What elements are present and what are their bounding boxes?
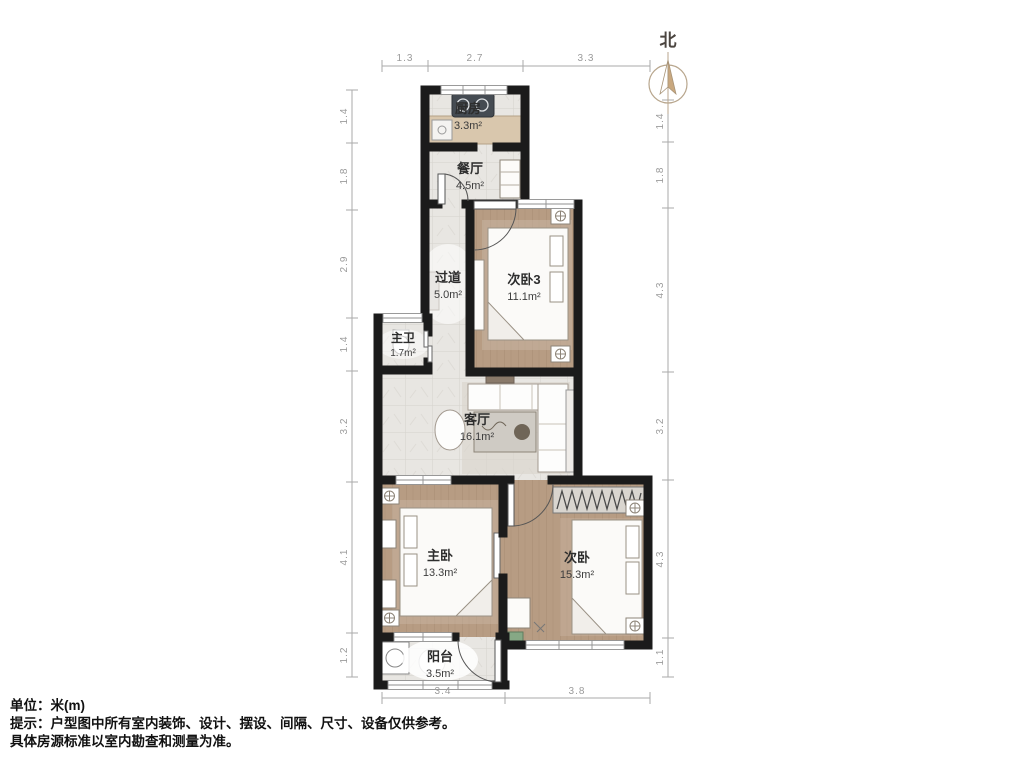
dim-left-4: 1.4 (339, 336, 350, 353)
dim-right-2: 1.8 (655, 167, 666, 184)
footer-unit-line: 单位：米(m) (10, 698, 456, 713)
dim-right-1: 1.4 (655, 113, 666, 130)
north-indicator: 北 (649, 31, 687, 114)
room-name: 餐厅 (456, 161, 483, 176)
room-area: 16.1m² (460, 431, 495, 443)
footer-disclaimer-line: 提示：户型图中所有室内装饰、设计、摆设、间隔、尺寸、设备仅供参考。 (10, 716, 456, 731)
dim-right-6: 1.1 (655, 649, 666, 666)
room-area: 15.3m² (560, 569, 595, 581)
floor-plan-svg: 厨房 3.3m² 餐厅 4.5m² 过道 5.0m² 次卧3 11.1m² 主卫… (0, 0, 1024, 768)
master-balcony-window (394, 633, 452, 642)
floor-plan-page: 厨房 3.3m² 餐厅 4.5m² 过道 5.0m² 次卧3 11.1m² 主卫… (0, 0, 1024, 768)
dim-left-6: 4.1 (339, 549, 350, 566)
footer-standard-line: 具体房源标准以室内勘查和测量为准。 (10, 734, 456, 749)
room-name: 次卧 (564, 550, 590, 565)
dim-left-7: 1.2 (339, 647, 350, 664)
footer-notes: 单位：米(m) 提示：户型图中所有室内装饰、设计、摆设、间隔、尺寸、设备仅供参考… (10, 698, 456, 752)
dim-top-3: 3.3 (578, 53, 595, 64)
sink-icon (432, 120, 452, 140)
dim-right-5: 4.3 (655, 551, 666, 568)
room-name: 主卫 (391, 330, 415, 345)
master-door-leaf (494, 533, 500, 578)
dim-top-1: 1.3 (397, 53, 414, 64)
bedroom3-desk (474, 260, 484, 330)
dim-left-1: 1.4 (339, 108, 350, 125)
dim-left-5: 3.2 (339, 418, 350, 435)
kitchen-window (441, 86, 507, 95)
sideboard-icon (500, 160, 520, 198)
dim-bottom-1: 3.4 (435, 686, 452, 697)
room-name: 阳台 (427, 649, 453, 664)
armchair-icon (435, 410, 465, 450)
living-master-window (396, 476, 451, 485)
room-name: 客厅 (464, 412, 490, 427)
dim-right-4: 3.2 (655, 418, 666, 435)
masterbath-window (383, 314, 422, 323)
dim-left-2: 1.8 (339, 168, 350, 185)
bedroom2-window (526, 641, 624, 650)
room-area: 3.3m² (454, 120, 482, 132)
room-area: 13.3m² (423, 567, 458, 579)
room-area: 3.5m² (426, 668, 454, 680)
room-name: 厨房 (455, 101, 481, 116)
room-masterbath-label: 主卫 1.7m² (390, 330, 416, 359)
room-name: 主卧 (427, 548, 453, 563)
room-area: 1.7m² (390, 348, 416, 359)
dim-right-3: 4.3 (655, 282, 666, 299)
dim-top-2: 2.7 (467, 53, 484, 64)
north-label: 北 (660, 31, 677, 50)
dim-bottom-2: 3.8 (569, 686, 586, 697)
room-area: 11.1m² (507, 291, 541, 303)
room-area: 5.0m² (434, 289, 462, 301)
room-area: 4.5m² (456, 180, 484, 192)
room-name: 次卧3 (507, 272, 540, 287)
bedroom3-window (518, 200, 574, 209)
room-name: 过道 (435, 270, 461, 285)
dim-left-3: 2.9 (339, 256, 350, 273)
